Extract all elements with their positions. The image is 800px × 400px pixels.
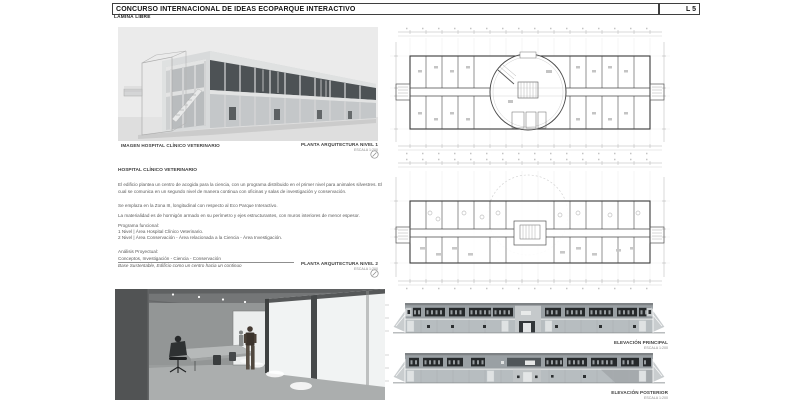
- description-paragraph-3: La materialidad es de hormigón armado en…: [118, 213, 388, 219]
- hero-exterior-render: [118, 27, 378, 141]
- plan-level2-caption: PLANTA ARQUITECTURA NIVEL 2 ESCALA 1:200: [270, 261, 378, 271]
- level-marks: [385, 353, 391, 383]
- elevation-front-caption: ELEVACIÓN PRINCIPAL ESCALA 1:200: [560, 340, 668, 350]
- sheet-title: CONCURSO INTERNACIONAL DE IDEAS ECOPARQU…: [112, 3, 659, 15]
- elevation-back-scale: ESCALA 1:200: [560, 396, 668, 400]
- project-description: HOSPITAL CLÍNICO VETERINARIO El edificio…: [118, 168, 388, 269]
- elevation-front-drawing: [393, 301, 665, 339]
- hero-caption: IMAGEN HOSPITAL CLÍNICO VETERINARIO: [121, 143, 220, 149]
- sheet-subtitle: LÁMINA LIBRE: [114, 15, 151, 20]
- north-arrow-icon: [370, 150, 379, 159]
- plan-level2-scale: ESCALA 1:200: [270, 267, 378, 271]
- plan-level1-scale: ESCALA 1:200: [270, 148, 378, 152]
- plan-level1-caption: PLANTA ARQUITECTURA NIVEL 1 ESCALA 1:200: [270, 142, 378, 152]
- plan-level1-drawing: [390, 26, 670, 156]
- elevation-back-caption: ELEVACIÓN POSTERIOR ESCALA 1:200: [560, 390, 668, 400]
- level-marks: [385, 303, 391, 333]
- interior-render: [115, 289, 385, 400]
- plan-level2-drawing: [390, 157, 670, 292]
- description-paragraph-1: El edificio plantea un centro de acogida…: [118, 182, 388, 194]
- exterior-building-illustration: [118, 27, 378, 141]
- elevation-front-scale: ESCALA 1:200: [560, 346, 668, 350]
- program-item-2: 2 Nivel | Área Conservación - Área relac…: [118, 235, 388, 241]
- description-paragraph-2: Se emplaza en la Zona III, longitudinal …: [118, 203, 388, 209]
- north-arrow-icon: [370, 269, 379, 278]
- description-heading: HOSPITAL CLÍNICO VETERINARIO: [118, 168, 388, 174]
- elevation-back-drawing: [393, 351, 665, 389]
- analysis-concepts: Conceptos, Investigación - Ciencia - Con…: [118, 256, 294, 264]
- sheet-number: L 5: [659, 3, 700, 15]
